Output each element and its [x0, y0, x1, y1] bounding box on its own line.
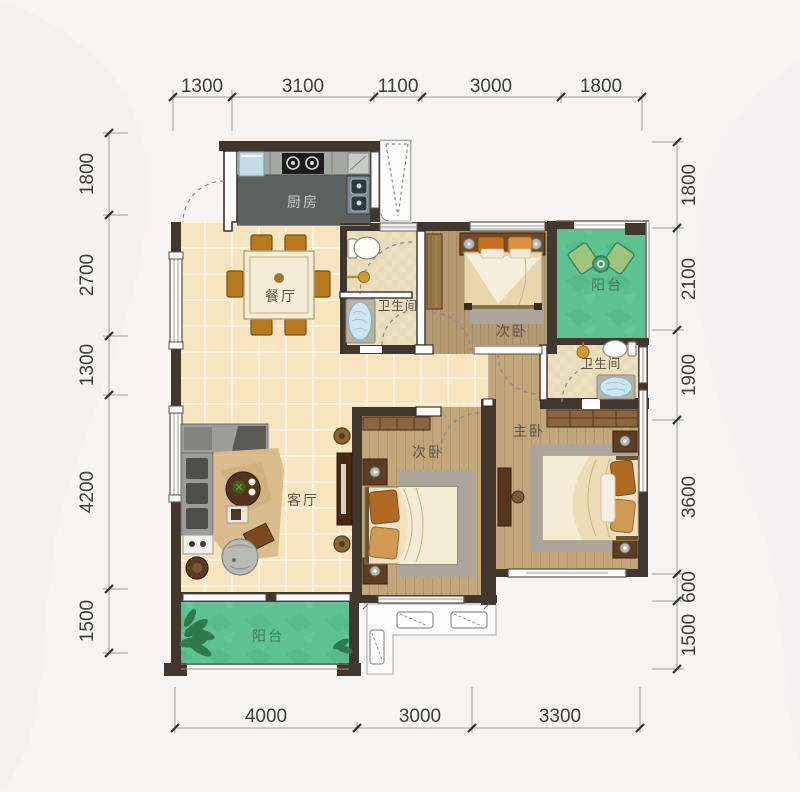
svg-text:1500: 1500: [679, 614, 700, 656]
svg-text:4000: 4000: [245, 706, 287, 727]
svg-text:3000: 3000: [470, 76, 512, 97]
svg-text:2700: 2700: [77, 254, 98, 296]
svg-text:阳台: 阳台: [252, 628, 284, 644]
svg-text:1800: 1800: [679, 164, 700, 206]
svg-text:1300: 1300: [77, 344, 98, 386]
svg-text:主卧: 主卧: [513, 423, 545, 439]
svg-text:次卧: 次卧: [496, 323, 528, 339]
svg-text:3100: 3100: [282, 76, 324, 97]
svg-text:阳台: 阳台: [591, 277, 623, 293]
svg-text:1900: 1900: [679, 354, 700, 396]
svg-text:1100: 1100: [378, 76, 419, 97]
svg-text:1800: 1800: [77, 153, 98, 195]
svg-text:次卧: 次卧: [412, 444, 444, 460]
svg-text:卫生间: 卫生间: [378, 299, 419, 313]
svg-text:1500: 1500: [77, 600, 98, 642]
svg-text:厨房: 厨房: [287, 194, 319, 210]
svg-text:卫生间: 卫生间: [581, 357, 622, 371]
svg-text:3600: 3600: [679, 476, 700, 518]
svg-text:餐厅: 餐厅: [265, 288, 297, 304]
svg-text:4200: 4200: [77, 471, 98, 513]
svg-text:600: 600: [679, 571, 700, 603]
svg-text:客厅: 客厅: [287, 492, 319, 508]
svg-text:1300: 1300: [181, 76, 223, 97]
svg-text:2100: 2100: [679, 258, 700, 300]
svg-text:3300: 3300: [539, 706, 581, 727]
svg-text:3000: 3000: [399, 706, 441, 727]
svg-text:1800: 1800: [580, 76, 622, 97]
